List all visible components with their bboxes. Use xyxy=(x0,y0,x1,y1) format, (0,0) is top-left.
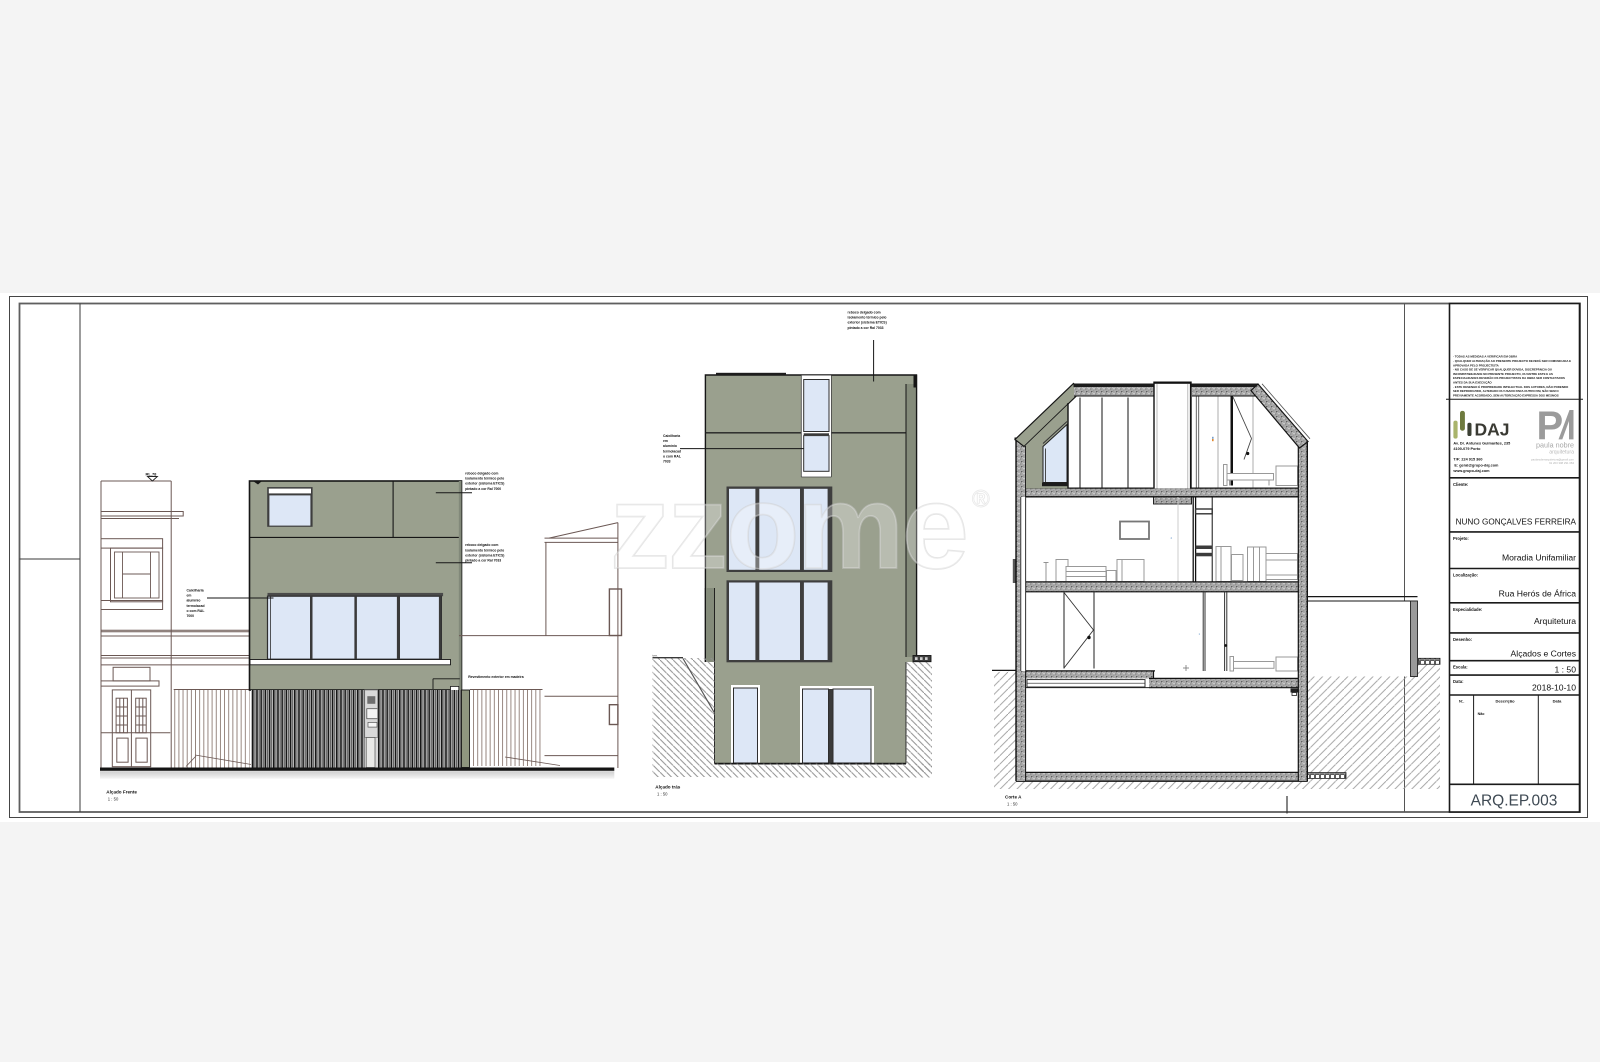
svg-text:1 : 50: 1 : 50 xyxy=(1007,802,1018,807)
svg-text:- NO CASO DE SE VERIFICAR QUAL: - NO CASO DE SE VERIFICAR QUALQUER DÚVID… xyxy=(1453,367,1552,372)
svg-text:em: em xyxy=(187,594,192,598)
svg-text:Rua Herós de África: Rua Herós de África xyxy=(1499,589,1577,599)
svg-text:termolacad: termolacad xyxy=(663,449,681,453)
svg-text:pintado a cor Ral 7033: pintado a cor Ral 7033 xyxy=(848,326,884,330)
svg-text:7000: 7000 xyxy=(187,614,195,618)
svg-text:alumínio: alumínio xyxy=(663,444,677,448)
svg-text:1 : 50: 1 : 50 xyxy=(657,792,668,797)
svg-text:DAJ: DAJ xyxy=(1475,420,1510,440)
svg-text:o com RAL: o com RAL xyxy=(187,609,205,613)
svg-text:em: em xyxy=(663,439,668,443)
svg-text:paula nobre: paula nobre xyxy=(1536,441,1574,450)
svg-text:isolamento térmico pelo: isolamento térmico pelo xyxy=(848,316,887,320)
svg-text:Não: Não xyxy=(1478,712,1486,716)
svg-text:Alçado Frente: Alçado Frente xyxy=(106,790,137,795)
svg-text:Data:: Data: xyxy=(1453,679,1463,684)
svg-text:exterior (sistema ETICS): exterior (sistema ETICS) xyxy=(848,321,887,325)
svg-text:isolamento térmico pelo: isolamento térmico pelo xyxy=(465,477,504,481)
svg-text:reboco delgado com: reboco delgado com xyxy=(465,543,498,547)
svg-text:T/F: 224 915 360: T/F: 224 915 360 xyxy=(1453,457,1482,461)
svg-text:- ESTE DESENHO É PROPRIEDADE I: - ESTE DESENHO É PROPRIEDADE INTELECTUAL… xyxy=(1453,384,1569,389)
svg-text:pintado a cor Ral 7033: pintado a cor Ral 7033 xyxy=(465,559,501,563)
svg-text:- TODAS AS MEDIDAS A VERIFICAR: - TODAS AS MEDIDAS A VERIFICAR EM OBRA xyxy=(1453,355,1518,359)
svg-text:Alçado trás: Alçado trás xyxy=(655,785,680,790)
svg-text:Desenho:: Desenho: xyxy=(1453,637,1472,642)
svg-text:E: geral@grupo-daj.com: E: geral@grupo-daj.com xyxy=(1454,464,1499,468)
svg-text:PREVIAMENTE ACORDADO, SEM AUTO: PREVIAMENTE ACORDADO, SEM AUTORIZAÇÃO EX… xyxy=(1453,392,1559,397)
svg-text:ANTES DA SUA EXECUÇÃO: ANTES DA SUA EXECUÇÃO xyxy=(1453,380,1492,385)
svg-text:pintado a cor Ral 7000: pintado a cor Ral 7000 xyxy=(465,487,501,491)
svg-text:www.grupo-daj.com: www.grupo-daj.com xyxy=(1452,469,1490,473)
svg-text:terr.: terr. xyxy=(653,654,658,658)
svg-text:exterior (sistema ETICS): exterior (sistema ETICS) xyxy=(465,482,504,486)
svg-text:Descrição: Descrição xyxy=(1495,699,1515,704)
svg-text:Projeto:: Projeto: xyxy=(1453,536,1469,541)
svg-text:ARQ.EP.003: ARQ.EP.003 xyxy=(1471,793,1558,810)
svg-text:Alçados e Cortes: Alçados e Cortes xyxy=(1511,649,1576,659)
svg-text:termolacad: termolacad xyxy=(187,604,205,608)
svg-text:Especialidade:: Especialidade: xyxy=(1453,607,1482,612)
svg-text:Arquitetura: Arquitetura xyxy=(1534,616,1576,626)
svg-text:zzome: zzome xyxy=(610,460,967,594)
svg-text:o com RAL: o com RAL xyxy=(663,454,681,458)
svg-text:91 203 308 291 084: 91 203 308 291 084 xyxy=(1549,461,1574,465)
svg-text:reboco delgado com: reboco delgado com xyxy=(465,472,498,476)
svg-text:alumínio: alumínio xyxy=(187,599,201,603)
svg-text:Revestimento exterior em madei: Revestimento exterior em madeira xyxy=(468,675,524,679)
svg-text:RL.78: RL.78 xyxy=(146,472,158,477)
svg-text:NUNO GONÇALVES FERREIRA: NUNO GONÇALVES FERREIRA xyxy=(1456,518,1577,527)
svg-text:exterior (sistema ETICS): exterior (sistema ETICS) xyxy=(465,553,504,557)
svg-text:- QUALQUER ALTERAÇÃO AO PRESEN: - QUALQUER ALTERAÇÃO AO PRESENTE PROJECT… xyxy=(1453,358,1571,363)
svg-text:4100-079 Porto: 4100-079 Porto xyxy=(1453,447,1481,451)
svg-text:Localização:: Localização: xyxy=(1453,573,1478,578)
svg-text:reboco delgado com: reboco delgado com xyxy=(848,311,881,315)
svg-text:Escala:: Escala: xyxy=(1453,665,1468,670)
svg-text:isolamento térmico pelo: isolamento térmico pelo xyxy=(465,548,504,552)
svg-text:2018-10-10: 2018-10-10 xyxy=(1532,683,1576,693)
svg-text:1 : 50: 1 : 50 xyxy=(108,797,119,802)
svg-text:arquitetura: arquitetura xyxy=(1549,450,1574,456)
svg-text:Corte A: Corte A xyxy=(1005,795,1022,800)
svg-text:ESPECIALIDADES DEVERÃO OS PROJ: ESPECIALIDADES DEVERÃO OS PROJECTISTAS D… xyxy=(1453,375,1565,380)
svg-text:N:.: N:. xyxy=(1459,699,1464,704)
svg-text:Caixilharia: Caixilharia xyxy=(187,589,204,593)
svg-text:Moradia Unifamiliar: Moradia Unifamiliar xyxy=(1502,553,1576,563)
svg-text:SER REPRODUZIDO, ALTERADO OU U: SER REPRODUZIDO, ALTERADO OU USADO PARA … xyxy=(1453,388,1559,393)
svg-text:®: ® xyxy=(972,486,990,513)
svg-text:1 : 50: 1 : 50 xyxy=(1554,665,1576,675)
svg-text:Cliente:: Cliente: xyxy=(1453,482,1468,487)
svg-text:Av. Dr. Antunes Guimarães, 235: Av. Dr. Antunes Guimarães, 235 xyxy=(1453,442,1510,446)
svg-text:Caixilharia: Caixilharia xyxy=(663,434,680,438)
svg-text:Data: Data xyxy=(1553,699,1562,704)
